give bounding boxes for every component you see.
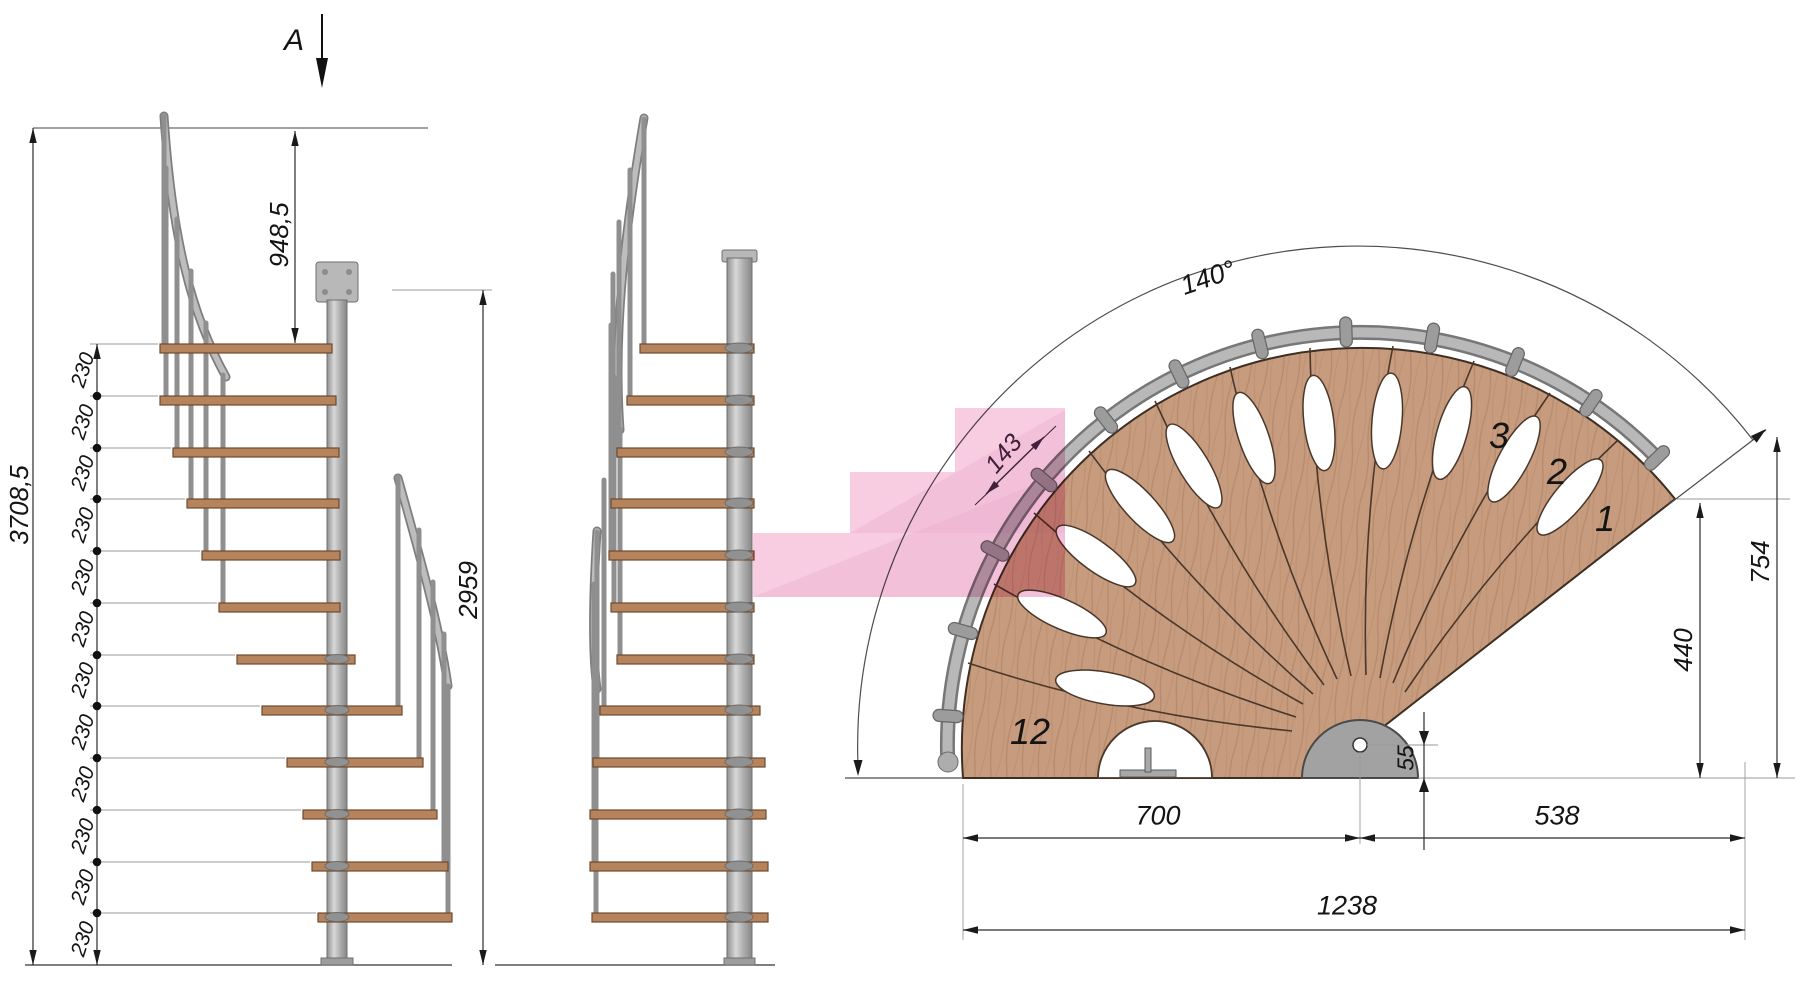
front-view-staircase: [590, 118, 768, 965]
dim-rail-height: 2959: [455, 561, 481, 619]
pole-foot: [321, 958, 353, 965]
support-bracket-stem: [1145, 748, 1151, 772]
section-marker-label: A: [284, 26, 304, 56]
dim-width-right: 538: [1534, 803, 1579, 830]
step-number-3: 3: [1489, 418, 1509, 454]
step-number-1: 1: [1595, 501, 1615, 537]
plan-view: [753, 246, 1795, 940]
step-number-2: 2: [1547, 454, 1567, 490]
dim-outer-radius: 754: [1747, 540, 1773, 583]
side-view-staircase: [160, 116, 452, 965]
dim-pole-offset: 55: [1395, 745, 1418, 771]
dim-total-width: 1238: [1317, 893, 1377, 920]
dim-top-riser: 948,5: [266, 202, 292, 267]
balusters: [594, 119, 644, 913]
extension-lines: [90, 344, 316, 913]
section-cut-arrow: [316, 14, 328, 88]
technical-drawing-page: A 3708,5 948,5 2959 230 230 230 230 230 …: [0, 0, 1800, 1003]
pole-center-hole: [1353, 738, 1367, 752]
dim-width-left: 700: [1135, 803, 1180, 830]
drawing-canvas: [0, 0, 1800, 1003]
step-number-12: 12: [1010, 714, 1050, 750]
pole-foot: [724, 958, 755, 965]
dim-total-height: 3708,5: [6, 465, 32, 545]
walkline-highlight: [753, 408, 1065, 597]
wall-bracket: [316, 262, 358, 302]
side-elevation-view: [25, 14, 775, 965]
dim-step-corner: 440: [1670, 628, 1696, 671]
